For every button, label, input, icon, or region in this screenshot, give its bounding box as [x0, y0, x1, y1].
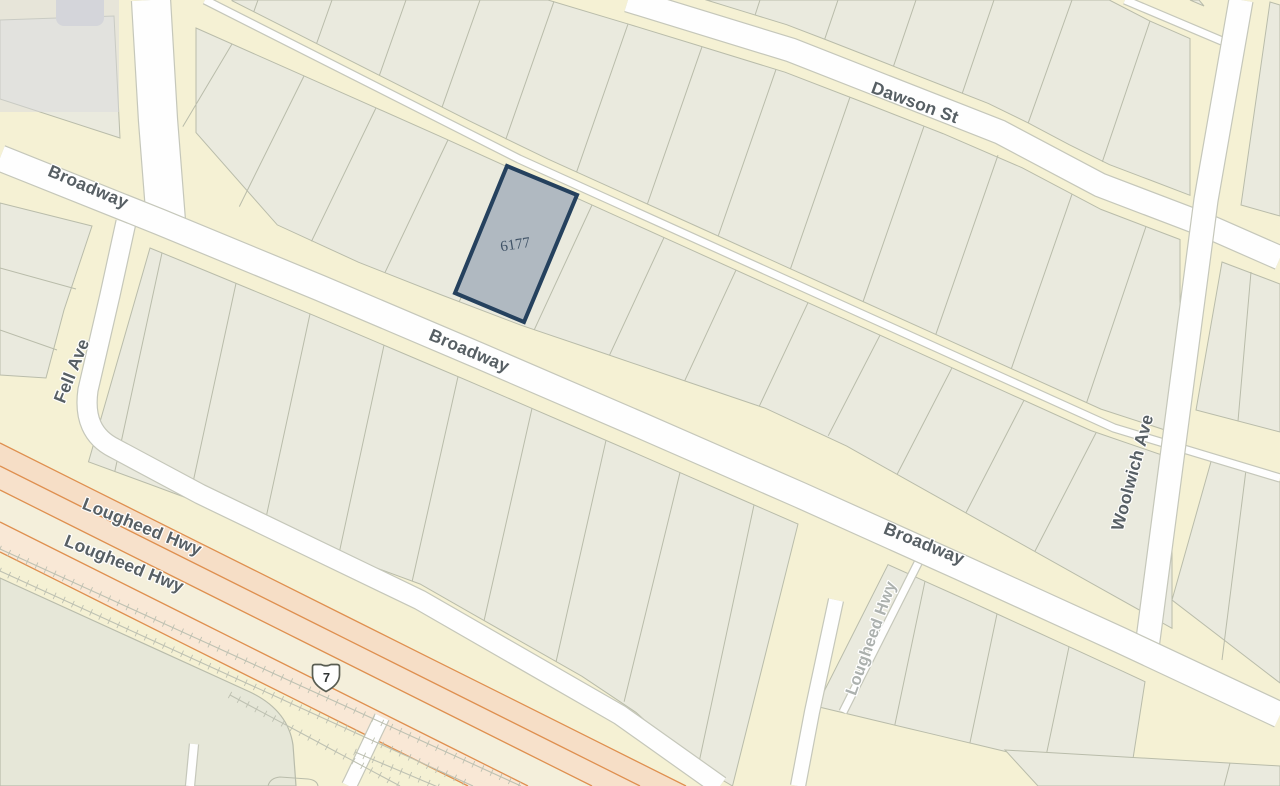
svg-text:7: 7: [323, 670, 330, 685]
